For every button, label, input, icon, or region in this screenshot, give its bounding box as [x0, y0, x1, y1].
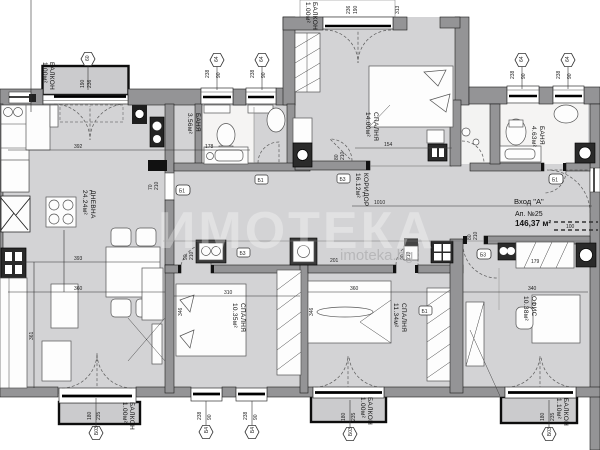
svg-text:310: 310	[224, 290, 233, 296]
svg-text:СПАЛНЯ: СПАЛНЯ	[400, 303, 407, 332]
svg-text:146,37 м²: 146,37 м²	[515, 219, 551, 228]
svg-text:imoteka.bg: imoteka.bg	[340, 247, 413, 264]
svg-text:360: 360	[350, 286, 359, 292]
svg-text:ДНЕВНА: ДНЕВНА	[89, 190, 96, 219]
svg-text:238: 238	[556, 70, 562, 79]
svg-text:1.10м²: 1.10м²	[555, 398, 562, 420]
svg-text:БАНЯ: БАНЯ	[538, 126, 545, 145]
svg-text:238: 238	[197, 411, 203, 420]
svg-text:346: 346	[309, 307, 315, 316]
svg-text:100: 100	[566, 224, 575, 230]
svg-text:235: 235	[351, 412, 357, 421]
svg-text:Вход "А": Вход "А"	[514, 197, 544, 206]
svg-text:64: 64	[259, 56, 265, 62]
svg-text:236: 236	[87, 79, 93, 88]
svg-text:64: 64	[214, 56, 220, 62]
svg-text:БАЛКОН: БАЛКОН	[562, 398, 569, 426]
svg-text:3.56м²: 3.56м²	[186, 113, 193, 135]
svg-text:210: 210	[473, 231, 479, 240]
svg-text:346: 346	[178, 307, 184, 316]
svg-text:1.00м²: 1.00м²	[359, 397, 366, 419]
svg-text:Б4: Б4	[250, 427, 256, 433]
svg-text:361: 361	[29, 331, 35, 340]
svg-text:1.00м²: 1.00м²	[41, 62, 48, 84]
svg-text:Б4: Б4	[204, 427, 210, 433]
svg-text:БАНЯ: БАНЯ	[194, 113, 201, 132]
svg-text:238: 238	[510, 70, 516, 79]
svg-text:1.00м²: 1.00м²	[121, 402, 128, 424]
svg-text:392: 392	[74, 144, 83, 150]
svg-text:БАЛКОН: БАЛКОН	[48, 62, 55, 90]
svg-text:236: 236	[346, 5, 352, 14]
svg-text:90: 90	[207, 414, 213, 420]
svg-text:64: 64	[565, 56, 571, 62]
svg-text:90: 90	[253, 414, 259, 420]
svg-text:БАЛКОН: БАЛКОН	[311, 2, 318, 30]
svg-text:190: 190	[80, 79, 86, 88]
svg-text:СПАЛНЯ: СПАЛНЯ	[239, 303, 246, 332]
svg-text:178: 178	[205, 144, 214, 150]
svg-text:154: 154	[384, 142, 393, 148]
svg-text:1.00м²: 1.00м²	[304, 2, 311, 24]
svg-text:16.12м²: 16.12м²	[354, 173, 361, 199]
svg-text:14.00м²: 14.00м²	[364, 112, 371, 138]
svg-text:313: 313	[395, 5, 401, 14]
svg-text:238: 238	[243, 411, 249, 420]
svg-text:Б03: Б03	[94, 426, 100, 435]
svg-text:180: 180	[87, 411, 93, 420]
svg-text:Б1: Б1	[258, 178, 264, 184]
svg-text:393: 393	[74, 256, 83, 262]
svg-text:235: 235	[96, 411, 102, 420]
svg-text:340: 340	[528, 286, 537, 292]
svg-text:210: 210	[154, 181, 160, 190]
svg-text:Б1: Б1	[422, 309, 428, 315]
svg-text:4.63м²: 4.63м²	[530, 126, 537, 148]
svg-text:90: 90	[261, 72, 267, 78]
svg-text:Б03: Б03	[348, 427, 354, 436]
svg-text:10.35м²: 10.35м²	[231, 303, 238, 329]
svg-text:190: 190	[353, 5, 359, 14]
svg-text:СПАЛНЯ: СПАЛНЯ	[372, 112, 379, 141]
svg-text:10.38м²: 10.38м²	[522, 296, 529, 322]
svg-text:Ап. №25: Ап. №25	[515, 211, 543, 218]
svg-text:60: 60	[85, 55, 91, 61]
svg-text:90: 90	[521, 73, 527, 79]
svg-text:179: 179	[531, 259, 540, 265]
svg-text:238: 238	[250, 69, 256, 78]
svg-text:180: 180	[540, 412, 546, 421]
svg-text:Б1: Б1	[552, 178, 558, 184]
svg-text:238: 238	[205, 69, 211, 78]
svg-text:БАЛКОН: БАЛКОН	[366, 397, 373, 425]
svg-text:Б03: Б03	[547, 427, 553, 436]
svg-text:180: 180	[341, 412, 347, 421]
svg-text:11.34м²: 11.34м²	[392, 303, 399, 328]
svg-text:Б3: Б3	[480, 253, 486, 259]
svg-text:24.24м²: 24.24м²	[81, 190, 88, 216]
svg-text:210: 210	[340, 151, 346, 160]
svg-text:Б3: Б3	[340, 177, 346, 183]
svg-text:90: 90	[216, 72, 222, 78]
svg-text:Б1: Б1	[179, 189, 185, 195]
svg-text:360: 360	[74, 286, 83, 292]
svg-text:90: 90	[567, 73, 573, 79]
svg-text:БАЛКОН: БАЛКОН	[128, 402, 135, 430]
svg-text:ОФИС: ОФИС	[530, 296, 537, 317]
svg-text:64: 64	[519, 56, 525, 62]
